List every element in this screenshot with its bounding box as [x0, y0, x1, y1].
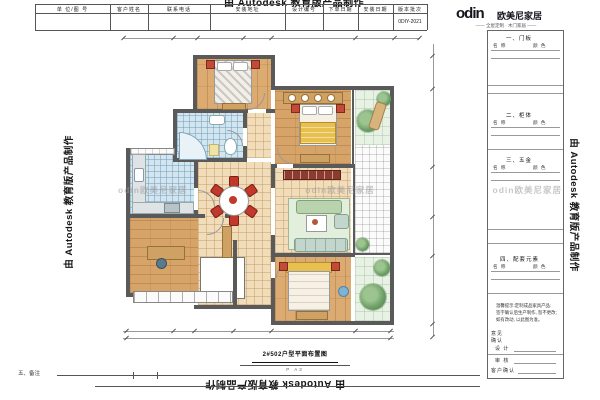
bath-mat [209, 144, 219, 156]
drawing-sheet: 由 Autodesk 教育版产品制作 由 Autodesk 教育版产品制作 由 … [0, 0, 600, 400]
wall [271, 235, 275, 255]
wall [266, 109, 275, 113]
sign-opinion: 意见 [491, 330, 503, 337]
nightstand [336, 104, 345, 113]
wall [271, 86, 394, 90]
spec-section-title: 一、门板 [506, 34, 532, 42]
spec-col-label: 名 称 [493, 120, 506, 126]
wall [233, 297, 237, 307]
panel-note-line: 如有改动, 以此图为准。 [496, 317, 542, 323]
nightstand [206, 60, 215, 69]
hanger [327, 94, 335, 102]
watermark-right: 由 Autodesk 教育版产品制作 [568, 75, 582, 335]
dining-chair [229, 215, 239, 226]
wall [126, 148, 130, 297]
wall [194, 210, 198, 218]
plan-caption: 2#502户型平面布置图 P A3 [215, 343, 375, 372]
spec-section-title: 四、配套元素 [500, 255, 539, 263]
hanger [301, 94, 309, 102]
terrace-floor [355, 145, 390, 253]
plan-caption-sub: P A3 [215, 367, 375, 372]
wall [193, 55, 275, 59]
kitchen-counter-bottom [132, 202, 194, 214]
toilet [224, 138, 237, 155]
panel-note-line: 温馨提示:定制成品家具产品: [496, 303, 551, 309]
bed-3 [288, 271, 330, 311]
wall [271, 168, 275, 188]
spec-panel: 一、门板 名 称 颜 色 二、柜体 名 称 颜 色 三、五金 名 称 颜 色 四… [487, 30, 564, 379]
dresser [296, 311, 328, 320]
coffee-table-decor [312, 219, 318, 225]
sign-confirm: 确认 [491, 337, 503, 344]
header-col-orderdate: 下单日期 [323, 6, 358, 13]
sign-audit: 审 核 [495, 357, 509, 364]
brand-name: 欧美尼家居 [497, 9, 542, 22]
spec-col-label: 名 称 [493, 43, 506, 49]
plant [360, 284, 386, 310]
wall [193, 55, 197, 113]
watermark-left: 由 Autodesk 教育版产品制作 [61, 72, 75, 332]
spec-col-label: 颜 色 [533, 120, 546, 126]
header-col-phone: 联系电话 [148, 6, 210, 13]
pillow [233, 62, 248, 71]
stove [164, 203, 180, 213]
footer-remark-label: 五、备注 [18, 369, 40, 377]
plant [356, 238, 369, 251]
wall [271, 278, 275, 325]
wall [271, 321, 394, 325]
panel-note-line: 签字确认后生产制作, 恕不更改; [496, 310, 557, 316]
sofa-front [294, 238, 348, 252]
spec-col-label: 颜 色 [533, 165, 546, 171]
wall [390, 86, 394, 325]
spec-section-title: 二、柜体 [506, 111, 532, 119]
hallway-floor [247, 113, 271, 158]
tv-console [283, 170, 341, 180]
wall [352, 90, 354, 166]
header-col-unit: 单 位/图 号 [36, 6, 109, 13]
header-col-customer: 客户姓名 [110, 6, 148, 13]
wall [293, 164, 355, 168]
plan-caption-text: 2#502户型平面布置图 [263, 352, 328, 358]
wall [355, 253, 390, 255]
wall [243, 109, 247, 128]
wall [353, 168, 355, 253]
bench [222, 103, 246, 110]
plant [374, 260, 390, 276]
brand-logo-text: odin [456, 5, 484, 22]
dining-table-centerpiece [229, 196, 237, 204]
bookshelf [222, 226, 232, 258]
version-value: 0DIY-2021 [393, 19, 427, 25]
header-col-designno: 设计编号 [285, 6, 323, 13]
wall [233, 240, 237, 297]
hanger [288, 94, 296, 102]
spec-col-label: 名 称 [493, 165, 506, 171]
header-col-installdate: 安装日期 [358, 6, 393, 13]
header-col-version: 版本批次 [393, 6, 427, 13]
spec-col-label: 颜 色 [533, 264, 546, 270]
pillow [302, 106, 317, 115]
spec-col-label: 名 称 [493, 264, 506, 270]
wall [271, 55, 275, 90]
sign-customer: 客户确认 [491, 367, 515, 374]
spec-col-label: 颜 色 [533, 43, 546, 49]
armchair [334, 214, 349, 229]
sofa-back [296, 200, 342, 214]
side-table [338, 286, 349, 297]
brand-tagline: —— 全屋定制 · 木门家居 —— [456, 23, 556, 29]
header-col-address: 安装地址 [210, 6, 285, 13]
pillow [217, 62, 232, 71]
blanket-master [300, 122, 336, 144]
desk [147, 246, 185, 260]
nightstand [291, 104, 300, 113]
sink [209, 115, 225, 125]
dresser [300, 154, 330, 163]
spec-section-title: 三、五金 [506, 156, 532, 164]
nightstand [251, 60, 260, 69]
bay-window [133, 291, 233, 303]
desk-chair [156, 258, 167, 269]
hanger [314, 94, 322, 102]
nightstand [279, 262, 288, 271]
sign-design: 设 计 [495, 345, 509, 352]
wall [271, 253, 355, 257]
pillow [318, 106, 333, 115]
nightstand [331, 262, 340, 271]
kitchen-sink [134, 168, 144, 182]
